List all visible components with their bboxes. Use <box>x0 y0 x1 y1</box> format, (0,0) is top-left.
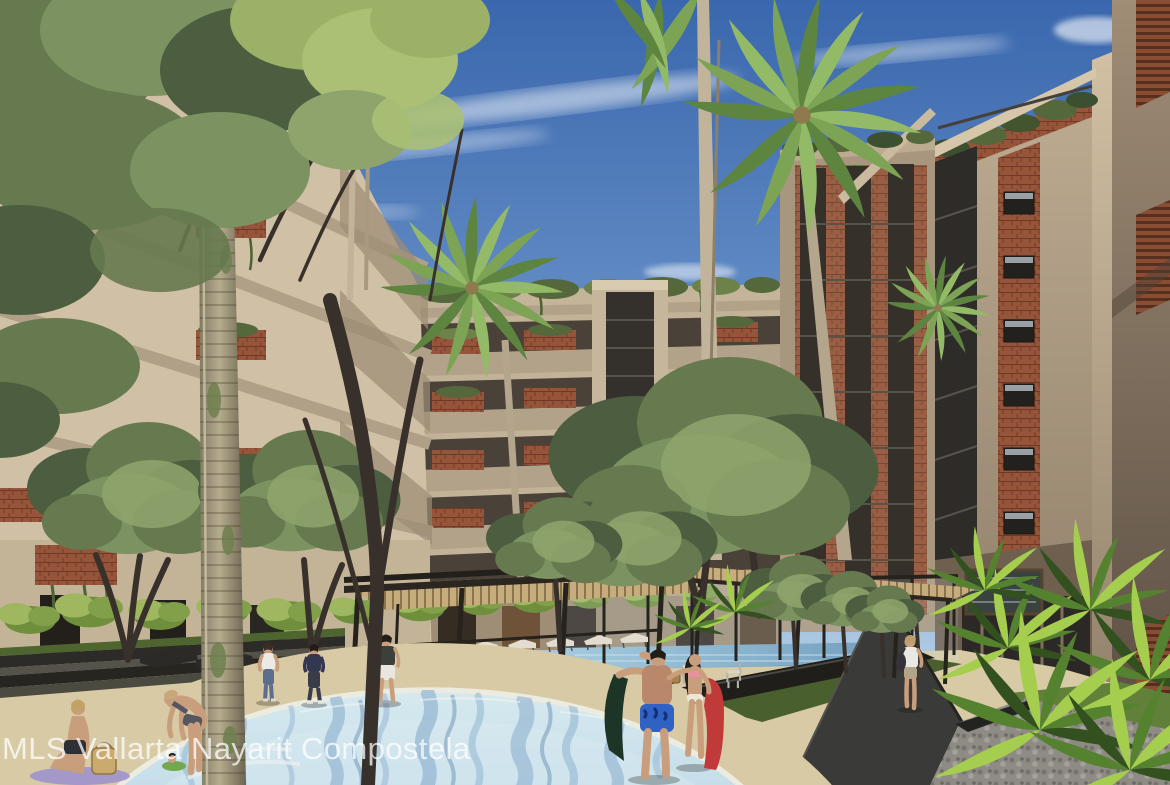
rendering: MLS Vallarta Nayarit Compostela <box>0 0 1170 785</box>
rendering-canvas <box>0 0 1170 785</box>
watermark-text: MLS Vallarta Nayarit Compostela <box>2 731 470 767</box>
